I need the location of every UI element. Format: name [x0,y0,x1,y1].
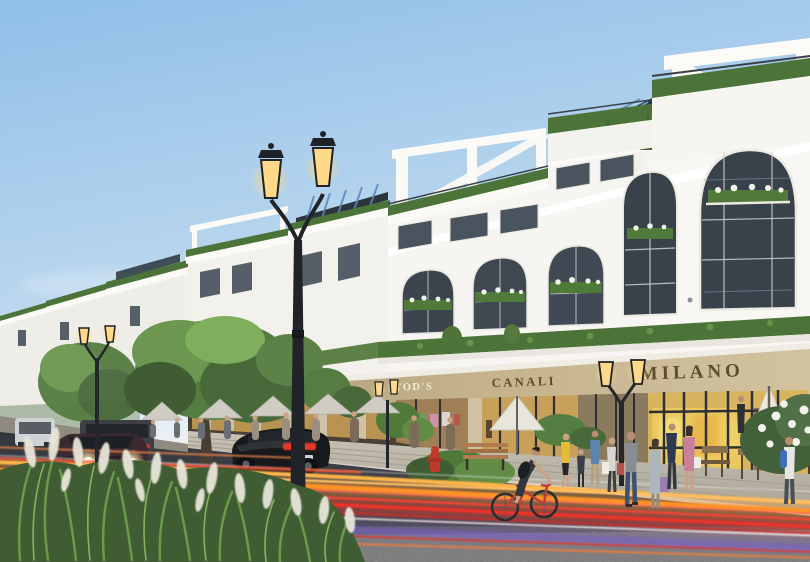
sign-milano: MILANO [639,360,744,385]
sign-canali: CANALI [491,374,556,390]
render-scene: MILANO CANALI TOD'S HAIDILAO ZARA THAI F… [0,0,810,562]
arch-windows-milano [623,150,796,316]
car-white-van [15,418,55,447]
